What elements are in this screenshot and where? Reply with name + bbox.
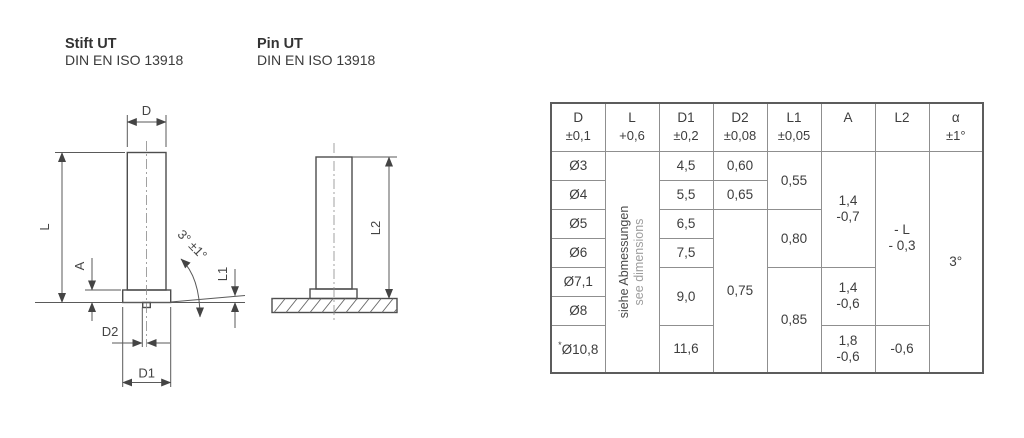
- dimension-table-container: D ±0,1 L +0,6 D1 ±0,2 D2 ±0,08 L1 ±0,05: [550, 102, 984, 374]
- cell-d: Ø5: [551, 209, 605, 238]
- cell-a: 1,4 -0,6: [821, 267, 875, 325]
- note-german: siehe Abmessungen: [617, 205, 632, 318]
- cell-l1: 0,55: [767, 151, 821, 209]
- dim-label-angle: 3° ±1°: [175, 227, 211, 263]
- cell-d: Ø8: [551, 296, 605, 325]
- cell-d2: 0,65: [713, 180, 767, 209]
- col-header-d1: D1 ±0,2: [659, 103, 713, 151]
- cell-d: *Ø10,8: [551, 325, 605, 373]
- cell-l1: 0,80: [767, 209, 821, 267]
- dim-label-l2: L2: [368, 221, 383, 235]
- col-header-l2: L2: [875, 103, 929, 151]
- cell-alpha: 3°: [929, 151, 983, 373]
- col-header-d: D ±0,1: [551, 103, 605, 151]
- col-header-l: L +0,6: [605, 103, 659, 151]
- product-name-de: Stift UT: [65, 36, 183, 52]
- col-header-l1: L1 ±0,05: [767, 103, 821, 151]
- dimensions-table: D ±0,1 L +0,6 D1 ±0,2 D2 ±0,08 L1 ±0,05: [550, 102, 984, 374]
- cell-d: Ø6: [551, 238, 605, 267]
- front-view-drawing: D L A 3° ±1° L1 D2 D1: [30, 95, 250, 395]
- cell-a: 1,8 -0,6: [821, 325, 875, 373]
- base-plate: [272, 299, 397, 313]
- cell-d1: 6,5: [659, 209, 713, 238]
- weld-collar: [310, 289, 357, 299]
- pin-outline: [123, 153, 171, 308]
- dim-label-l1: L1: [215, 267, 230, 281]
- dim-label-d1: D1: [138, 366, 155, 381]
- cell-d1: 7,5: [659, 238, 713, 267]
- cell-l-note: siehe Abmessungen see dimensions: [605, 151, 659, 373]
- standard-de: DIN EN ISO 13918: [65, 52, 183, 68]
- rotated-note: siehe Abmessungen see dimensions: [617, 205, 647, 318]
- cell-d1: 4,5: [659, 151, 713, 180]
- table-row: Ø3 siehe Abmessungen see dimensions 4,5 …: [551, 151, 983, 180]
- col-header-d2: D2 ±0,08: [713, 103, 767, 151]
- note-english: see dimensions: [632, 205, 647, 318]
- cell-a: 1,4 -0,7: [821, 151, 875, 267]
- cell-d1: 11,6: [659, 325, 713, 373]
- cell-l2: -0,6: [875, 325, 929, 373]
- title-german: Stift UT DIN EN ISO 13918: [65, 36, 183, 68]
- standard-en: DIN EN ISO 13918: [257, 52, 375, 68]
- product-name-en: Pin UT: [257, 36, 375, 52]
- cell-d: Ø4: [551, 180, 605, 209]
- dim-label-l: L: [37, 223, 52, 230]
- cell-d2: 0,75: [713, 209, 767, 373]
- dim-label-d: D: [142, 103, 151, 118]
- datasheet-page: Stift UT DIN EN ISO 13918 Pin UT DIN EN …: [0, 0, 1024, 438]
- cell-d1: 9,0: [659, 267, 713, 325]
- cell-d: Ø7,1: [551, 267, 605, 296]
- cell-l1: 0,85: [767, 267, 821, 373]
- col-header-alpha: α ±1°: [929, 103, 983, 151]
- dim-label-a: A: [72, 261, 87, 270]
- dim-label-d2: D2: [102, 324, 119, 339]
- cell-l2: - L - 0,3: [875, 151, 929, 325]
- dimension-lines: [35, 115, 245, 387]
- header-row: D ±0,1 L +0,6 D1 ±0,2 D2 ±0,08 L1 ±0,05: [551, 103, 983, 151]
- title-english: Pin UT DIN EN ISO 13918: [257, 36, 375, 68]
- cell-d1: 5,5: [659, 180, 713, 209]
- cell-d: Ø3: [551, 151, 605, 180]
- cell-d2: 0,60: [713, 151, 767, 180]
- col-header-a: A: [821, 103, 875, 151]
- welded-view-drawing: L2: [250, 130, 410, 330]
